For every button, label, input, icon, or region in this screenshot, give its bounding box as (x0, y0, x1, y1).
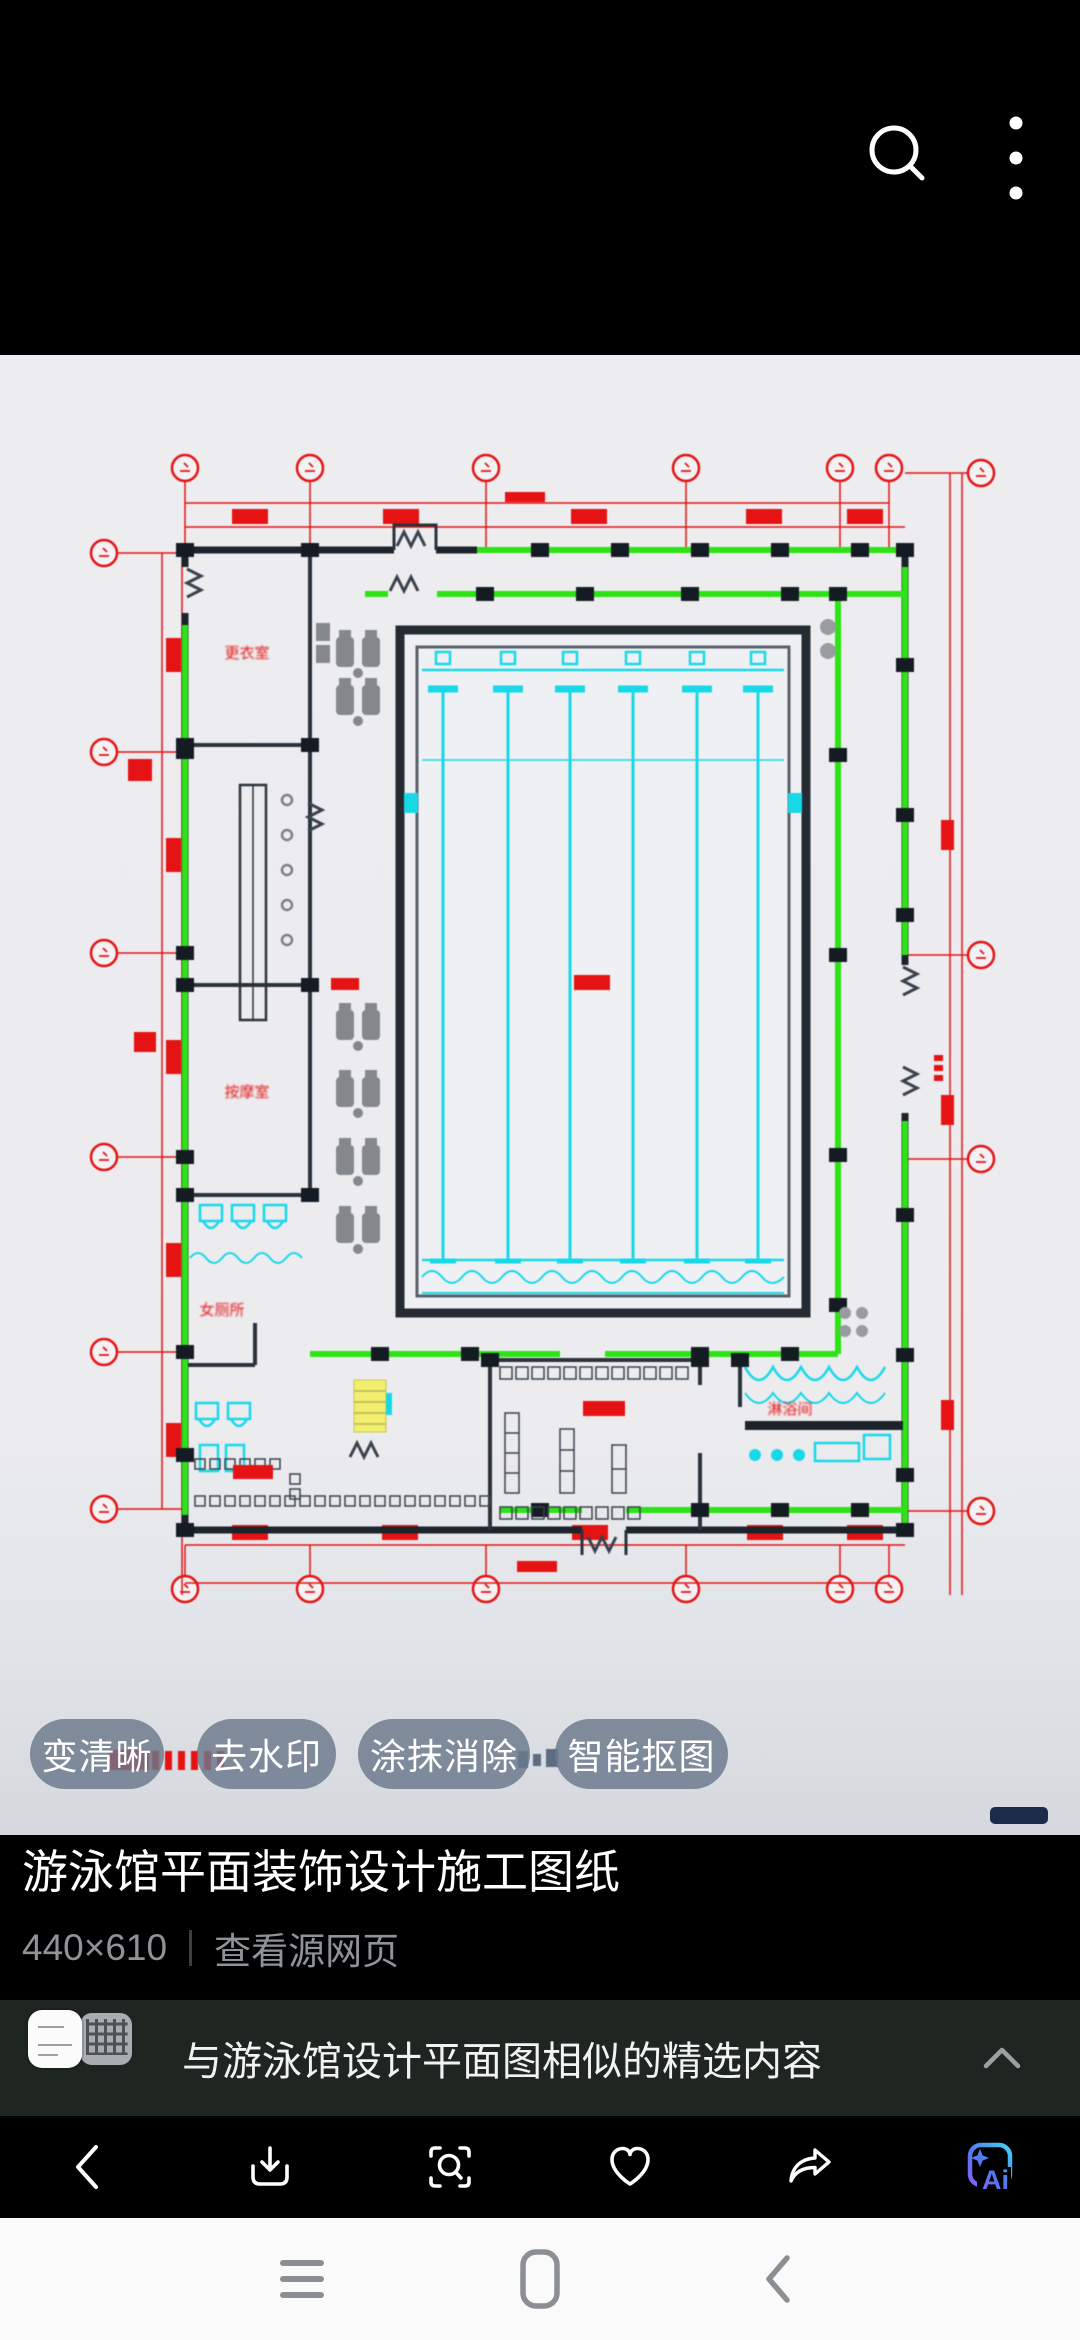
download-icon[interactable] (180, 2139, 360, 2195)
chip-enhance[interactable]: 变清晰 (30, 1719, 164, 1789)
room-label: 更衣室 (224, 645, 269, 662)
room-label: 淋浴间 (767, 1401, 812, 1418)
divider (189, 1930, 192, 1966)
chip-erase[interactable]: 涂抹消除 (358, 1719, 530, 1789)
image-title: 游泳馆平面装饰设计施工图纸 (22, 1843, 1022, 1901)
shelf-grid (500, 1367, 688, 1519)
swimming-pool (400, 630, 806, 1313)
back-icon[interactable] (754, 2250, 802, 2308)
chip-smart-cutout[interactable]: 智能抠图 (555, 1719, 728, 1789)
room-label: 按摩室 (224, 1083, 269, 1101)
more-options-icon[interactable] (1003, 113, 1029, 205)
view-source-link[interactable]: 查看源网页 (214, 1921, 399, 1975)
page-indicator (990, 1807, 1048, 1824)
image-viewer[interactable]: 更衣室 按摩室 女厕所 淋浴间 变清晰 去水印 涂抹消除 智能抠图 (0, 355, 1080, 1835)
related-title: 与游泳馆设计平面图相似的精选内容 (182, 2000, 822, 2116)
stairs-and-shelves (195, 1367, 688, 1519)
favorite-icon[interactable] (540, 2139, 720, 2195)
top-bar (0, 0, 1080, 355)
yellow-stairs (354, 1380, 392, 1432)
image-resolution: 440×610 (22, 1927, 167, 1969)
search-icon[interactable] (860, 118, 938, 196)
red-mark (331, 978, 359, 990)
home-icon[interactable] (516, 2250, 564, 2308)
chip-remove-watermark[interactable]: 去水印 (197, 1719, 336, 1789)
ai-action-chips: 变清晰 去水印 涂抹消除 智能抠图 (0, 1719, 1080, 1791)
related-thumbnail-front (28, 2010, 82, 2068)
related-thumbnail-back (80, 2013, 132, 2065)
image-search-icon[interactable] (360, 2139, 540, 2195)
related-content-bar[interactable]: 与游泳馆设计平面图相似的精选内容 (0, 2000, 1080, 2116)
chevron-up-icon[interactable] (980, 2044, 1024, 2070)
bottom-toolbar: Ai (0, 2116, 1080, 2218)
floor-plan-drawing: 更衣室 按摩室 女厕所 淋浴间 (0, 355, 1080, 1835)
system-nav-bar (0, 2218, 1080, 2340)
recents-menu-icon[interactable] (278, 2250, 326, 2308)
screen: 更衣室 按摩室 女厕所 淋浴间 变清晰 去水印 涂抹消除 智能抠图 (0, 0, 1080, 2340)
room-label: 女厕所 (199, 1301, 244, 1319)
ai-label: Ai (982, 2165, 1009, 2195)
share-icon[interactable] (720, 2139, 900, 2195)
red-block (583, 1401, 625, 1416)
ai-icon[interactable]: Ai (900, 2135, 1080, 2199)
caption-area: 游泳馆平面装饰设计施工图纸 440×610 查看源网页 (0, 1835, 1080, 2000)
red-block (233, 1465, 273, 1479)
back-icon[interactable] (0, 2139, 180, 2195)
